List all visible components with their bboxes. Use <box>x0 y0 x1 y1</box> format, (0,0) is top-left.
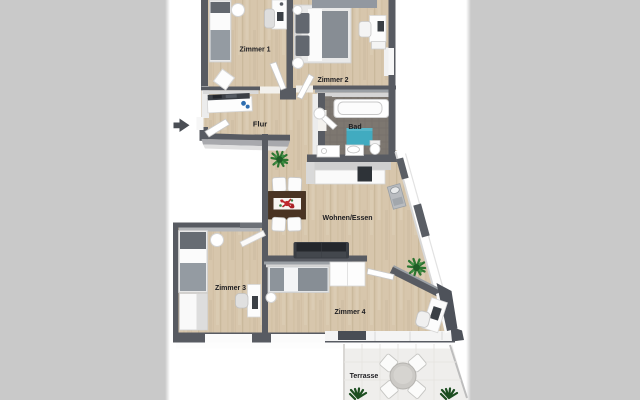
svg-text:Wohnen/Essen: Wohnen/Essen <box>322 215 372 222</box>
svg-text:Zimmer 1: Zimmer 1 <box>239 47 270 54</box>
svg-text:Zimmer 4: Zimmer 4 <box>334 309 365 316</box>
svg-text:Bad: Bad <box>348 124 361 131</box>
svg-text:Zimmer 3: Zimmer 3 <box>215 285 246 292</box>
svg-text:Flur: Flur <box>253 120 267 129</box>
svg-text:Zimmer 2: Zimmer 2 <box>317 77 348 84</box>
svg-text:Terrasse: Terrasse <box>350 373 379 380</box>
